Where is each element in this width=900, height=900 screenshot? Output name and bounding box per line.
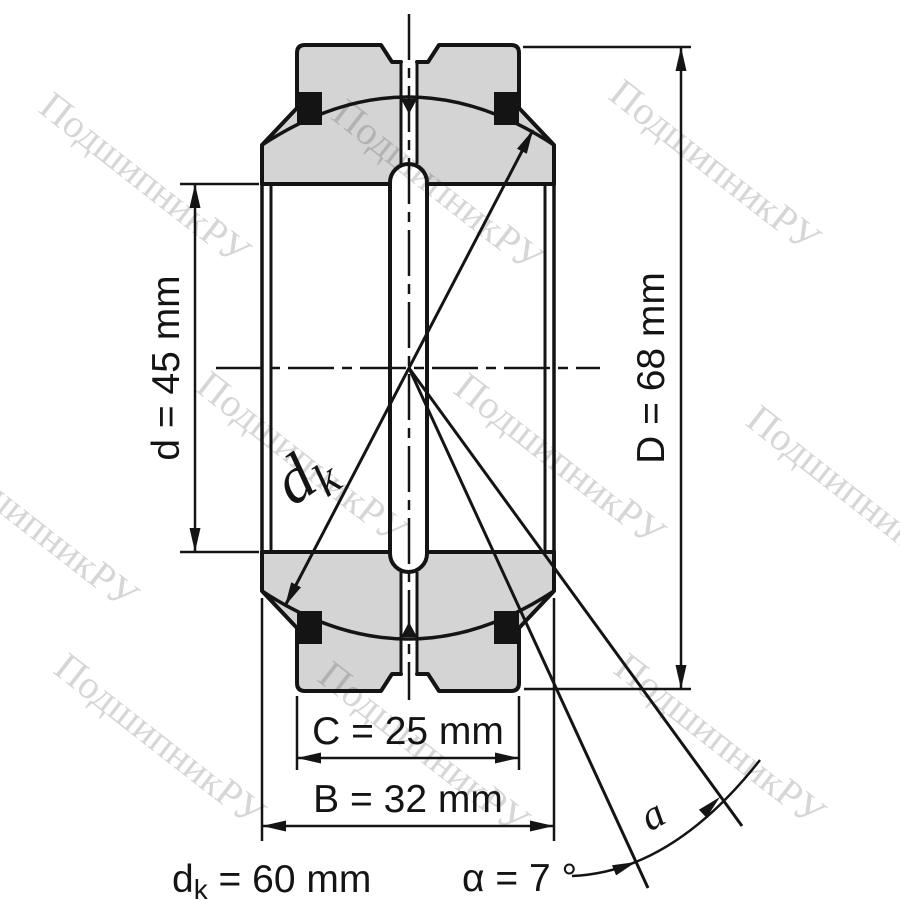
- dim-D-arrow-top: [676, 47, 687, 71]
- seal-bottom-left: [297, 611, 322, 644]
- tilt-leader-arrowhead-1: [612, 862, 636, 875]
- watermark-text: ПодшипникРУ: [601, 70, 829, 262]
- dim-alpha-label: α = 7 °: [462, 857, 577, 900]
- watermark-text: ПодшипникРУ: [0, 427, 147, 619]
- dim-B-arrow-right: [530, 821, 554, 832]
- seal-bottom-right: [494, 611, 519, 644]
- dim-d-label: d = 45 mm: [145, 275, 188, 460]
- watermark-text: ПодшипникРУ: [188, 362, 416, 554]
- dim-B-label: B = 32 mm: [313, 778, 503, 821]
- watermark-text: ПодшипникРУ: [738, 396, 900, 588]
- dim-B-arrow-left: [262, 821, 286, 832]
- dim-C-arrow-left: [297, 753, 321, 764]
- bearing-dimension-drawing: ПодшипникРУ ПодшипникРУ ПодшипникРУ Подш…: [0, 0, 900, 900]
- watermark-text: ПодшипникРУ: [31, 83, 259, 275]
- watermark-text: ПодшипникРУ: [46, 644, 274, 836]
- dim-C-label: C = 25 mm: [312, 710, 504, 753]
- dim-d-arrow-bottom: [190, 528, 201, 552]
- dk-symbol: d: [172, 858, 194, 900]
- dim-D-label: D = 68 mm: [630, 272, 673, 464]
- dk-subscript: k: [194, 874, 209, 900]
- dim-dk-label: dk = 60 mm: [172, 858, 371, 900]
- bearing-drawing-svg: ПодшипникРУ ПодшипникРУ ПодшипникРУ Подш…: [0, 0, 900, 900]
- seal-top-right: [494, 92, 519, 125]
- seal-top-left: [297, 92, 322, 125]
- dim-C-arrow-right: [495, 753, 519, 764]
- angle-arc-label: a: [632, 790, 673, 840]
- dk-value: = 60 mm: [208, 858, 372, 900]
